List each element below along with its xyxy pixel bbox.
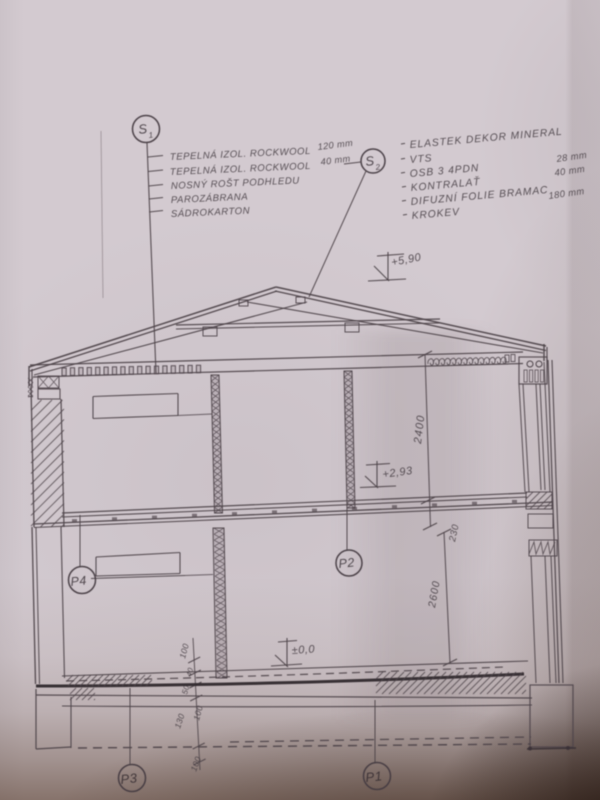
- svg-text:±0,0: ±0,0: [291, 643, 315, 657]
- svg-text:100: 100: [177, 642, 191, 659]
- svg-text:NOSNÝ ROŠT PODHLEDU: NOSNÝ ROŠT PODHLEDU: [171, 175, 300, 192]
- svg-text:SÁDROKARTON: SÁDROKARTON: [171, 206, 251, 220]
- svg-text:120 mm: 120 mm: [317, 138, 354, 152]
- svg-text:PAROZÁBRANA: PAROZÁBRANA: [171, 192, 249, 206]
- svg-text:28 mm: 28 mm: [555, 149, 588, 164]
- svg-text:TEPELNÁ IZOL. ROCKWOOL: TEPELNÁ IZOL. ROCKWOOL: [170, 146, 311, 163]
- svg-text:ELASTEK DEKOR MINERAL: ELASTEK DEKOR MINERAL: [409, 127, 563, 151]
- svg-text:+5,90: +5,90: [390, 251, 422, 269]
- svg-text:P2: P2: [338, 555, 356, 571]
- svg-text:2: 2: [374, 162, 381, 172]
- svg-text:230: 230: [447, 523, 462, 544]
- svg-text:40 mm: 40 mm: [320, 153, 351, 167]
- svg-text:S: S: [137, 121, 148, 137]
- svg-text:VTS: VTS: [409, 153, 433, 166]
- svg-text:P3: P3: [120, 770, 139, 787]
- svg-text:KROKEV: KROKEV: [411, 207, 460, 222]
- svg-text:+2,93: +2,93: [382, 465, 414, 481]
- svg-text:130: 130: [172, 712, 186, 729]
- svg-text:1: 1: [148, 130, 154, 140]
- svg-text:P1: P1: [365, 768, 383, 785]
- svg-text:2600: 2600: [426, 579, 443, 609]
- svg-text:40 mm: 40 mm: [554, 163, 586, 178]
- svg-text:100: 100: [188, 755, 203, 773]
- svg-text:P4: P4: [70, 573, 88, 589]
- svg-text:S: S: [364, 153, 375, 169]
- svg-text:2400: 2400: [412, 414, 428, 446]
- svg-text:180 mm: 180 mm: [548, 185, 585, 201]
